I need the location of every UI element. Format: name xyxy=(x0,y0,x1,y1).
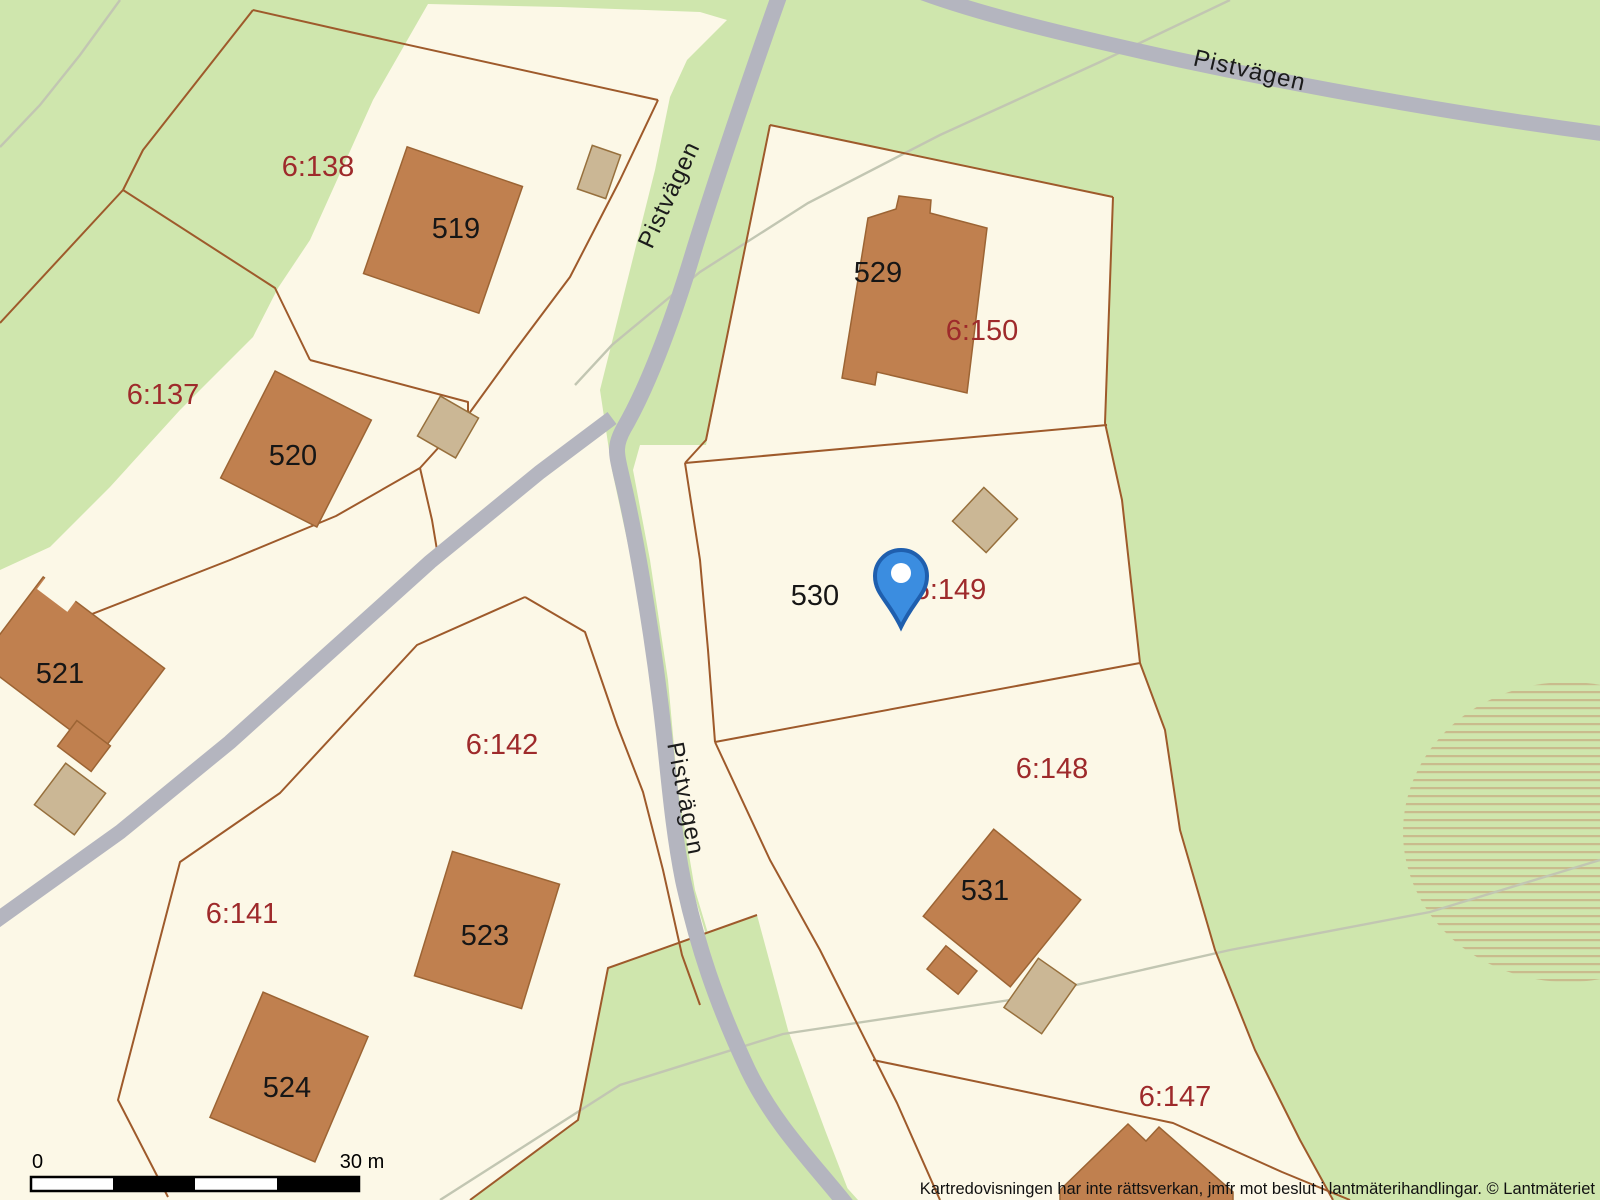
parcel-label-6-141: 6:141 xyxy=(206,898,279,930)
house-label-521: 521 xyxy=(36,658,84,690)
parcel-label-6-137: 6:137 xyxy=(127,379,200,411)
house-label-524: 524 xyxy=(263,1072,311,1104)
house-label-519: 519 xyxy=(432,213,480,245)
map-viewport[interactable]: 519 520 521 523 524 529 530 531 6:138 6:… xyxy=(0,0,1600,1200)
map-canvas[interactable]: 519 520 521 523 524 529 530 531 6:138 6:… xyxy=(0,0,1600,1200)
house-label-531: 531 xyxy=(961,875,1009,907)
scale-start-label: 0 xyxy=(32,1151,43,1173)
scale-end-label: 30 m xyxy=(340,1151,384,1173)
parcel-label-6-142: 6:142 xyxy=(466,729,539,761)
parcel-label-6-148: 6:148 xyxy=(1016,753,1089,785)
parcel-label-6-138: 6:138 xyxy=(282,151,355,183)
house-label-530: 530 xyxy=(791,580,839,612)
house-label-523: 523 xyxy=(461,920,509,952)
house-label-520: 520 xyxy=(269,440,317,472)
map-attribution: Kartredovisningen har inte rättsverkan, … xyxy=(920,1180,1596,1198)
house-label-529: 529 xyxy=(854,257,902,289)
parcel-label-6-147: 6:147 xyxy=(1139,1081,1212,1113)
parcel-label-6-150: 6:150 xyxy=(946,315,1019,347)
